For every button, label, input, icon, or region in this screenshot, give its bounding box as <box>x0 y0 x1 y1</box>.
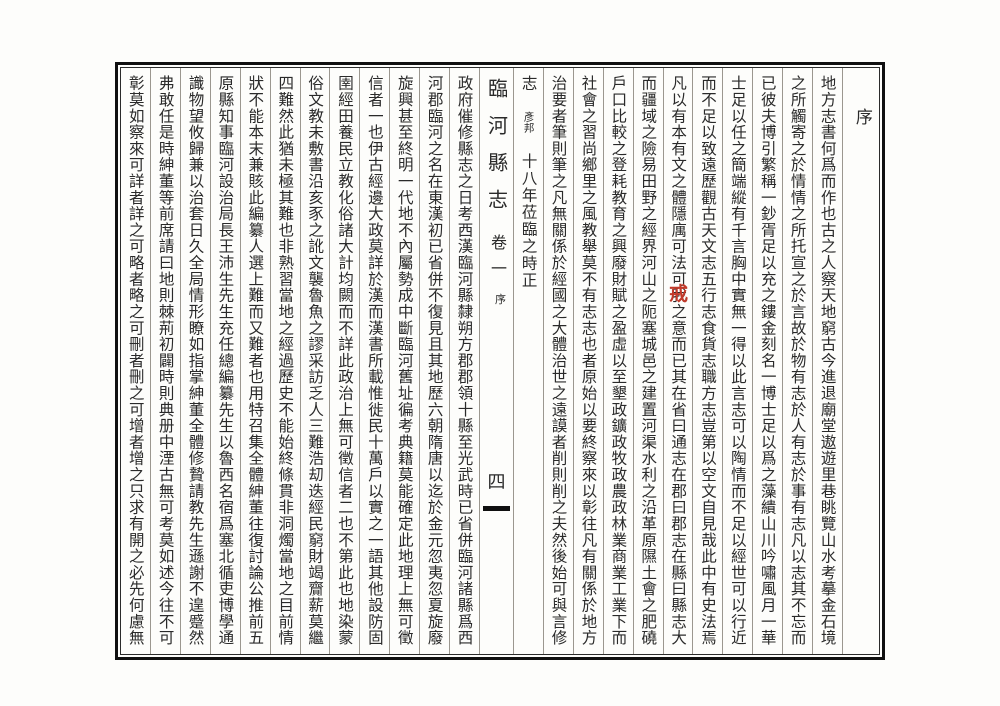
text-column: 信者一也伊古經邊大政莫詳於漢而漢書所載惟徙民十萬戶以實之一語其他設防固 <box>360 68 390 654</box>
inner-border: 序地方志書何爲而作也古之人察天地窮古今進退廟堂遨遊里巷眺覽山水考摹金石境之所觸寄… <box>120 67 880 655</box>
column-text: 已彼夫博引繁稱一鈔胥足以充之鏤金刻名一博士足以爲之藻繢山川吟嘯風月一華 <box>760 75 776 645</box>
column-text: 河郡臨河之名在東漢初已省併不復見且其地歷六朝隋唐以迄於金元忽夷忽夏旋廢 <box>426 75 442 645</box>
text-column: 政府催修縣志之日考西漢臨河縣隸朔方郡郡領十縣至光武時已省併臨河諸縣爲西 <box>450 68 480 654</box>
column-text: 識物望攸歸兼以治套日久全局情形瞭如指掌紳董全體修贄請教先生遜謝不遑蹙然 <box>187 75 203 645</box>
folio-column: 臨河縣志 卷一 序 四 <box>480 68 514 654</box>
text-column: 之所觸寄之於情情之所托宣之於言故於物有志於人有志於事有志凡以志其不忘而 <box>783 68 813 654</box>
column-text: 而疆域之險易田野之經界河山之阨塞城邑之建置河渠水利之沿革原隰土會之肥磽 <box>640 75 656 645</box>
text-column: 旋興甚至終明一代地不內屬勢成中斷臨河舊址徧考典籍莫能確定此地理上無可徵 <box>390 68 420 654</box>
column-text: 圉經田養民立教化俗諸大計均闕而不詳此政治上無可徵信者二也不第此也地染蒙 <box>337 75 353 645</box>
column-text: 社會之習尚鄉里之風教舉莫不有志志也者原始以要終察來以彰往凡有關係於地方 <box>580 75 596 645</box>
text-column: 已彼夫博引繁稱一鈔胥足以充之鏤金刻名一博士足以爲之藻繢山川吟嘯風月一華 <box>753 68 783 654</box>
column-text: 序 <box>852 108 870 645</box>
column-text: 四難然此猶未極其難也非熟習當地之經過歷史不能始終條貫非洞燭當地之目前情 <box>277 75 293 645</box>
column-text: 政府催修縣志之日考西漢臨河縣隸朔方郡郡領十縣至光武時已省併臨河諸縣爲西 <box>456 75 472 645</box>
section-header-column: 序 <box>843 68 879 654</box>
column-text: 原縣知事臨河設治局長王沛生先生充任總編纂先生以魯西名宿爲塞北循吏博學通 <box>217 75 233 645</box>
scanned-book-page: 序地方志書何爲而作也古之人察天地窮古今進退廟堂遨遊里巷眺覽山水考摹金石境之所觸寄… <box>0 0 1000 706</box>
text-column: 圉經田養民立教化俗諸大計均闕而不詳此政治上無可徵信者二也不第此也地染蒙 <box>330 68 360 654</box>
signature-column: 志 彥邦 十八年莅臨之時正 <box>514 68 544 654</box>
columns: 序地方志書何爲而作也古之人察天地窮古今進退廟堂遨遊里巷眺覽山水考摹金石境之所觸寄… <box>121 68 879 654</box>
column-text: 治要者筆則筆之凡無關係於經國之大體治世之遠謨者削則削之夫然後始可與言修 <box>550 75 566 645</box>
signature-text: 志 彥邦 十八年莅臨之時正 <box>520 75 536 645</box>
column-text: 信者一也伊古經邊大政莫詳於漢而漢書所載惟徙民十萬戶以實之一語其他設防固 <box>367 75 383 645</box>
page-border: 序地方志書何爲而作也古之人察天地窮古今進退廟堂遨遊里巷眺覽山水考摹金石境之所觸寄… <box>115 62 885 660</box>
text-column: 士足以任之簡端縱有千言胸中實無一得以此言志可以陶情而不足以經世可以行近 <box>723 68 753 654</box>
column-text: 彰莫如察來可詳者詳之可略者略之可刪者刪之可增者增之只求有開之必先何慮無 <box>127 75 143 645</box>
volume-label: 卷一 <box>488 234 505 286</box>
column-text: 旋興甚至終明一代地不內屬勢成中斷臨河舊址徧考典籍莫能確定此地理上無可徵 <box>396 75 412 645</box>
folio-section-label: 序 <box>484 291 517 307</box>
signature-lead-char: 志 <box>520 75 538 92</box>
author-name: 彥邦 <box>523 112 535 134</box>
text-column: 社會之習尚鄉里之風教舉莫不有志志也者原始以要終察來以彰往凡有關係於地方 <box>574 68 604 654</box>
correction-seal-char: 戒 <box>669 285 688 304</box>
text-column: 凡以有本有文之體隱庽可法可我之意而已其在省曰通志在郡曰郡志在縣曰縣志大 <box>664 68 694 654</box>
column-text: 地方志書何爲而作也古之人察天地窮古今進退廟堂遨遊里巷眺覽山水考摹金石境 <box>819 75 835 645</box>
text-column: 狀不能本末兼賅此編纂人選上難而又難者也用特召集全體紳董往復討論公推前五 <box>241 68 271 654</box>
page-number: 四 <box>480 468 513 494</box>
text-column: 四難然此猶未極其難也非熟習當地之經過歷史不能始終條貫非洞燭當地之目前情 <box>271 68 301 654</box>
column-text: 戶口比較之登耗教育之興廢財賦之盈虛以至墾政鑛政牧政農政林業商業工業下而 <box>610 75 626 645</box>
text-column: 識物望攸歸兼以治套日久全局情形瞭如指掌紳董全體修贄請教先生遜謝不遑蹙然 <box>181 68 211 654</box>
folio-black-bar <box>483 506 511 511</box>
text-column: 俗文教未敷書沿亥豕之訛文襲魯魚之謬采訪乏人三難浩刧迭經民窮財竭齎薪莫繼 <box>301 68 331 654</box>
book-title: 臨河縣志 <box>486 78 506 226</box>
column-text: 士足以任之簡端縱有千言胸中實無一得以此言志可以陶情而不足以經世可以行近 <box>730 75 746 645</box>
text-column: 戶口比較之登耗教育之興廢財賦之盈虛以至墾政鑛政牧政農政林業商業工業下而 <box>604 68 634 654</box>
column-text: 俗文教未敷書沿亥豕之訛文襲魯魚之謬采訪乏人三難浩刧迭經民窮財竭齎薪莫繼 <box>307 75 323 645</box>
text-column: 彰莫如察來可詳者詳之可略者略之可刪者刪之可增者增之只求有開之必先何慮無 <box>121 68 151 654</box>
column-text: 而不足以致遠歷觀古天文志五行志食貨志職方志豈第以空文自見哉此中有史法焉 <box>700 75 716 645</box>
text-column: 治要者筆則筆之凡無關係於經國之大體治世之遠謨者削則削之夫然後始可與言修 <box>544 68 574 654</box>
text-column: 而不足以致遠歷觀古天文志五行志食貨志職方志豈第以空文自見哉此中有史法焉 <box>693 68 723 654</box>
text-column: 地方志書何爲而作也古之人察天地窮古今進退廟堂遨遊里巷眺覽山水考摹金石境 <box>813 68 843 654</box>
text-column: 原縣知事臨河設治局長王沛生先生充任總編纂先生以魯西名宿爲塞北循吏博學通 <box>211 68 241 654</box>
column-text: 之所觸寄之於情情之所托宣之於言故於物有志於人有志於事有志凡以志其不忘而 <box>789 75 805 645</box>
text-column: 弗敢任是時紳董等前席請曰地則棘荊初闢時則典册中湮古無可考莫如述今往不可 <box>151 68 181 654</box>
column-text: 狀不能本末兼賅此編纂人選上難而又難者也用特召集全體紳董往復討論公推前五 <box>247 75 263 645</box>
column-text: 凡以有本有文之體隱庽可法可我之意而已其在省曰通志在郡曰郡志在縣曰縣志大 <box>670 75 686 645</box>
signature-date-text: 十八年莅臨之時正 <box>520 153 538 289</box>
column-text: 弗敢任是時紳董等前席請曰地則棘荊初闢時則典册中湮古無可考莫如述今往不可 <box>157 75 173 645</box>
text-column: 而疆域之險易田野之經界河山之阨塞城邑之建置河渠水利之沿革原隰土會之肥磽 <box>634 68 664 654</box>
text-column: 河郡臨河之名在東漢初已省併不復見且其地歷六朝隋唐以迄於金元忽夷忽夏旋廢 <box>420 68 450 654</box>
